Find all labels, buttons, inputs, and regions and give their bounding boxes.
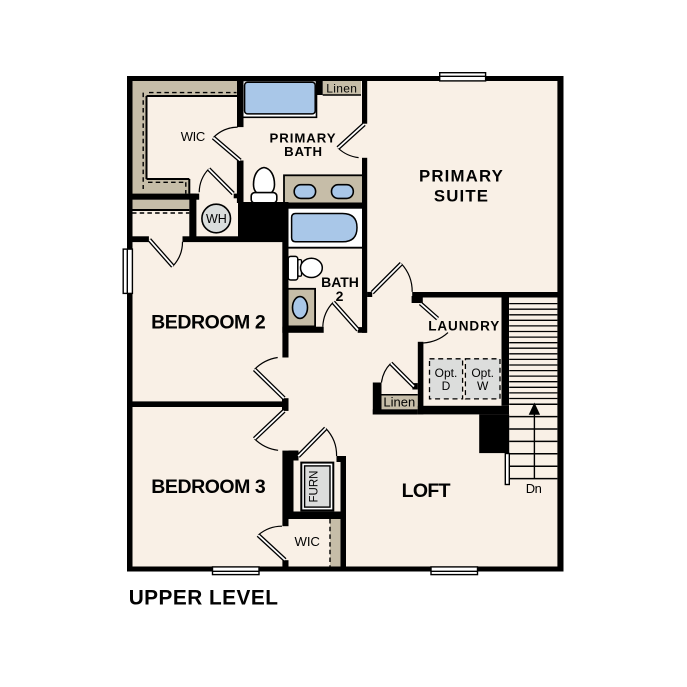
svg-text:Dn: Dn — [526, 481, 542, 496]
svg-text:Opt.: Opt. — [435, 366, 458, 380]
svg-text:FURN: FURN — [309, 471, 321, 503]
svg-text:BEDROOM 2: BEDROOM 2 — [151, 311, 266, 333]
svg-text:LOFT: LOFT — [402, 480, 451, 502]
svg-text:UPPER LEVEL: UPPER LEVEL — [129, 587, 279, 610]
svg-text:Linen: Linen — [326, 81, 357, 95]
svg-text:BATH: BATH — [284, 144, 323, 159]
svg-text:BEDROOM 3: BEDROOM 3 — [151, 476, 266, 498]
svg-text:Linen: Linen — [383, 394, 415, 409]
svg-text:D: D — [442, 379, 451, 393]
svg-text:WIC: WIC — [181, 129, 205, 144]
svg-text:Opt.: Opt. — [471, 366, 494, 380]
svg-text:2: 2 — [336, 288, 344, 304]
svg-text:SUITE: SUITE — [434, 187, 489, 206]
svg-text:W: W — [477, 379, 489, 393]
svg-text:PRIMARY: PRIMARY — [419, 167, 504, 186]
svg-text:WH: WH — [206, 212, 227, 226]
svg-text:LAUNDRY: LAUNDRY — [428, 319, 500, 334]
svg-text:WIC: WIC — [295, 534, 321, 549]
